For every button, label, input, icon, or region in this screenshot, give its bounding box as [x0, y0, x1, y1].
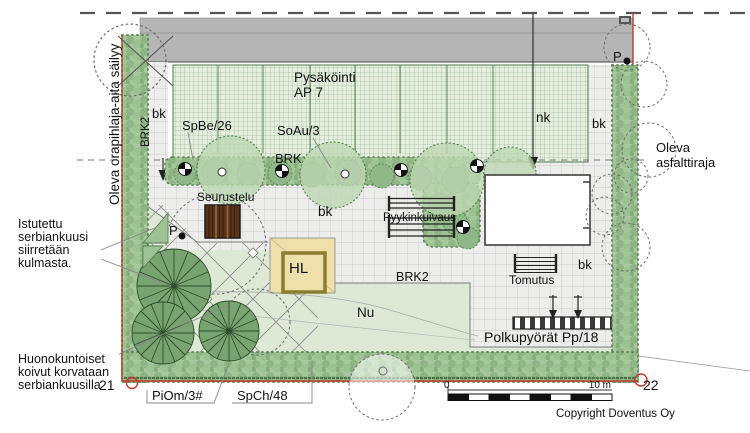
- label-seurustelu: Seurustelu: [197, 190, 254, 204]
- site-plan: P P Oleva orapihlaja-aita säilyy BRK2 bk…: [0, 0, 750, 433]
- parking-count: AP 7: [294, 85, 323, 100]
- label-polkupyorat: Polkupyörät Pp/18: [484, 329, 599, 345]
- label-brk2-bottom: BRK2: [396, 270, 429, 284]
- sign-marker-inner: [621, 18, 629, 22]
- building-outline: [485, 175, 590, 245]
- p-marker-right-label: P: [613, 49, 622, 64]
- bk-right-low: bk: [578, 257, 592, 272]
- note-spruce-line3: siirretään: [18, 243, 69, 257]
- note-birch: Huonokuntoiset koivut korvataan serbiank…: [18, 352, 109, 392]
- label-nk: nk: [536, 110, 551, 125]
- note-spruce-line2: serbiankuusi: [18, 230, 88, 244]
- label-tomutus: Tomutus: [509, 273, 554, 287]
- note-birch-line3: serbiankuusilla: [18, 378, 101, 392]
- scale-ten: 10 m: [589, 380, 611, 391]
- bk-middle: bk: [318, 204, 333, 219]
- spruce-3: [199, 301, 259, 361]
- copyright: Copyright Doventus Oy: [556, 408, 675, 420]
- scale-zero: 0: [444, 380, 450, 391]
- tag-spch: SpCh/48: [237, 388, 288, 403]
- label-soau: SoAu/3: [277, 123, 320, 138]
- p-marker-left-dot: [179, 233, 186, 240]
- label-brk: BRK: [275, 151, 302, 166]
- note-spruce-line1: Istutettu: [18, 217, 63, 231]
- note-birch-line2: koivut korvataan: [18, 365, 109, 379]
- corner-label-21: 21: [99, 377, 115, 393]
- note-birch-line1: Huonokuntoiset: [18, 352, 105, 366]
- bk-right-top: bk: [592, 116, 606, 131]
- corner-label-22: 22: [643, 377, 659, 393]
- p-marker-right-dot: [624, 58, 631, 65]
- label-nu: Nu: [357, 305, 374, 320]
- hedge-note-vertical: Oleva orapihlaja-aita säilyy: [107, 43, 122, 205]
- brk2-vertical: BRK2: [140, 117, 152, 147]
- site-plan-drawing: P P Oleva orapihlaja-aita säilyy BRK2 bk…: [0, 0, 750, 433]
- asphalt-road: [140, 16, 633, 62]
- p-marker-left-label: P: [169, 223, 178, 238]
- bk-left: bk: [152, 106, 166, 121]
- seating-deck: [205, 205, 240, 238]
- label-hl: HL: [289, 260, 308, 277]
- label-spbe: SpBe/26: [182, 118, 232, 133]
- asphalt-note-line2: asfalttiraja: [656, 155, 716, 170]
- tag-piom: PiOm/3#: [152, 388, 203, 403]
- label-pyykinkuivaus: Pyykinkuivaus: [383, 212, 456, 224]
- parking-title: Pysäköinti: [294, 70, 356, 85]
- note-spruce-line4: kulmasta.: [18, 256, 72, 270]
- asphalt-note-line1: Oleva: [656, 140, 691, 155]
- spruce-2: [132, 302, 194, 364]
